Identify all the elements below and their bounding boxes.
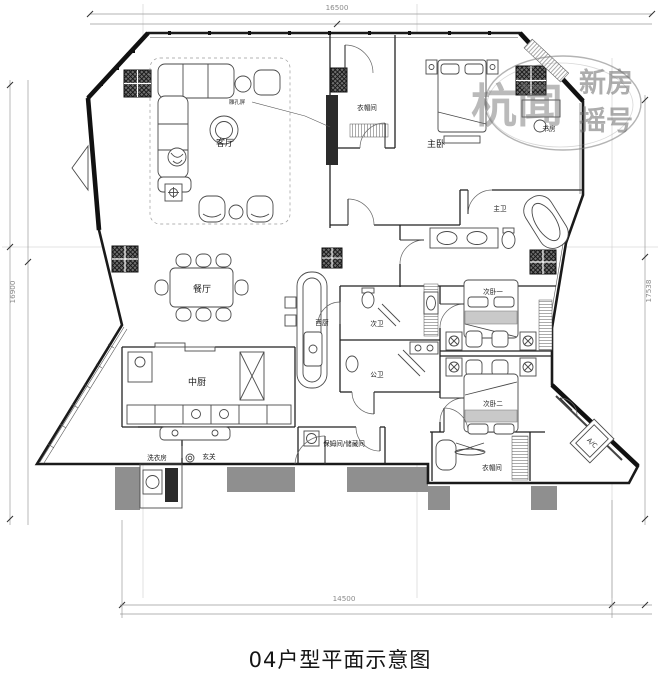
room-label-nanny: 保姆间/储藏间 xyxy=(323,439,365,448)
bay-triangle xyxy=(72,146,88,190)
dimension-left: 16900 xyxy=(7,80,31,525)
column xyxy=(112,246,138,272)
room-label-foyer: 玄关 xyxy=(202,452,216,461)
dim-right-value: 17538 xyxy=(644,279,653,302)
room-label-cloak-bottom: 衣帽间 xyxy=(482,463,502,472)
room-label-bedroom2-1: 次卧一 xyxy=(483,287,503,296)
dimension-top: 16500 xyxy=(87,3,655,27)
watermark-line2: 摇号 xyxy=(579,106,633,137)
dim-bottom-value: 14500 xyxy=(333,594,356,603)
cloak-top-shelves xyxy=(350,124,388,137)
room-label-master-bath: 主卫 xyxy=(493,204,507,213)
floor-plan-drawing: 16500 16900 17538 14500 xyxy=(0,0,660,692)
room-label-public-bath: 公卫 xyxy=(370,371,384,379)
room-label-west-kitchen: 西厨 xyxy=(315,319,329,327)
room-label-master-bed: 主卧 xyxy=(427,138,445,150)
column xyxy=(530,250,556,274)
room-label-second-bath: 次卫 xyxy=(370,319,384,328)
laundry-fixtures xyxy=(140,464,182,508)
column xyxy=(124,70,151,97)
foyer-fixtures xyxy=(186,454,194,462)
page-title: 04户型平面示意图 xyxy=(249,648,432,672)
watermark-big-text: 杭闻 xyxy=(471,79,563,133)
room-label-cloak-top: 衣帽间 xyxy=(357,103,377,112)
column xyxy=(322,248,342,268)
room-label-bedroom2-2: 次卧二 xyxy=(483,399,503,408)
perforated-screen xyxy=(326,95,338,165)
dim-left-value: 16900 xyxy=(8,280,17,303)
nanny-fixtures xyxy=(304,431,319,446)
bedroom-wardrobe xyxy=(539,300,552,350)
room-label-living: 客厅 xyxy=(216,137,234,149)
room-label-chinese-kitchen: 中厨 xyxy=(188,376,206,388)
room-label-dining: 餐厅 xyxy=(193,283,211,295)
floor-plan-page: 16500 16900 17538 14500 xyxy=(0,0,660,692)
dimension-right: 17538 xyxy=(642,95,653,525)
cloak-bottom-shelves xyxy=(512,436,528,480)
room-label-laundry: 洗衣房 xyxy=(147,453,167,462)
screen-label: 雕孔屏 xyxy=(229,98,246,106)
watermark-line1: 新房 xyxy=(579,67,633,99)
dimension-bottom: 14500 xyxy=(119,500,652,618)
dim-top-value: 16500 xyxy=(326,3,349,12)
